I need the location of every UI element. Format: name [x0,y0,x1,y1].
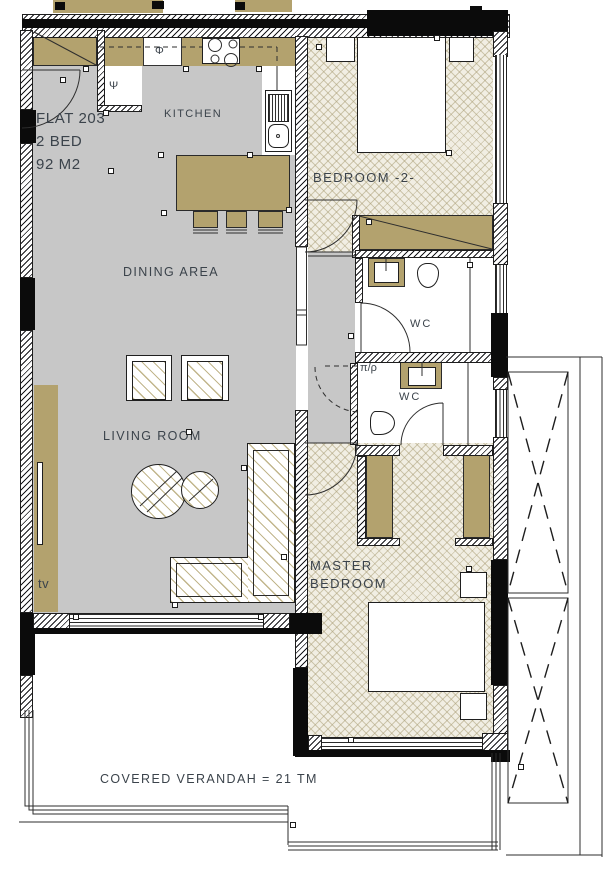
wall-segment [20,110,36,143]
bedroom2-nightstand [449,35,474,62]
master-nightstand [460,693,487,720]
tv-label: tv [38,576,49,591]
louvre-x [508,372,568,803]
room-label-dining: DINING AREA [123,265,219,279]
kitchen-counter-top [97,36,295,66]
node-marker [466,566,472,572]
master-window [322,737,482,750]
wc2-toilet [370,411,395,435]
flat-area: 92 M2 [36,156,81,173]
node-marker [73,614,79,620]
wall-segment [350,363,358,445]
node-marker [108,168,114,174]
bedroom2-wardrobe [358,215,493,250]
wall-segment [357,538,400,546]
wall-segment [355,258,363,303]
node-marker [348,333,354,339]
tv-screen [37,462,43,545]
room-label-kitchen: KITCHEN [164,108,222,120]
node-marker [446,150,452,156]
wall-segment [491,313,508,377]
wall-segment [493,31,508,57]
louvre-panel [508,372,568,593]
oven-symbol: Φ [155,45,165,57]
node-marker [256,66,262,72]
bedroom2-window [495,55,507,203]
node-marker [518,764,524,770]
bar-stool [258,211,283,228]
wc2-window [495,390,507,437]
wall-segment [20,278,35,330]
room-label-bedroom2: BEDROOM -2- [313,170,415,185]
upper-floor-fragment [53,0,163,13]
coffee-table [181,471,219,509]
hallway-floor [308,252,355,443]
louvre-panel [508,598,568,803]
node-marker [366,219,372,225]
opening-jambs [296,247,307,345]
node-marker [60,77,66,83]
node-marker [183,66,189,72]
wc2-basin [408,367,436,386]
bedroom2-bed [357,36,446,153]
wall-segment [33,628,322,634]
wall-segment [491,560,508,685]
bar-stool [226,211,247,228]
node-marker [247,152,253,158]
node-marker [158,152,164,158]
wc1-basin [374,262,399,283]
wall-segment [20,30,33,110]
wall-segment [355,250,508,258]
master-bed [368,602,485,692]
wc1-door [361,303,410,352]
sofa-seat-line [176,563,242,597]
bar-stool [193,211,218,228]
wall-segment [443,445,493,456]
verandah-label: COVERED VERANDAH = 21 TM [100,772,318,786]
wall-segment [357,456,366,546]
stove [202,38,240,64]
wall-segment [22,19,370,28]
wc1-window [495,265,507,313]
room-label-wc1: WC [410,318,432,330]
node-marker [434,35,440,41]
wall-segment [20,675,33,718]
wc1-toilet [417,263,439,288]
kitchen-island [176,155,290,211]
node-marker [281,554,287,560]
sink-drainboard [268,94,289,122]
wall-segment [97,30,105,112]
master-nightstand [460,572,487,598]
node-marker [103,110,109,116]
room-label-master-1: MASTER [310,558,373,573]
wall-segment [20,143,33,278]
wall-segment [295,750,508,757]
node-marker [348,737,354,743]
sofa-seat-line [253,450,289,596]
floor-plan: FLAT 203 2 BED 92 M2 KITCHEN Φ Ψ BEDROOM… [0,0,606,881]
flat-beds: 2 BED [36,133,82,150]
sink-basin [268,124,289,148]
wall-segment [20,330,33,613]
fridge-symbol: Ψ [109,80,120,92]
wall-segment [455,538,493,546]
armchair-seat [187,361,223,400]
bedroom2-nightstand [326,35,355,62]
node-marker [161,210,167,216]
armchair-seat [132,361,166,400]
wall-segment [367,10,508,36]
wall-segment [355,445,400,456]
node-marker [316,44,322,50]
wall-segment [493,203,508,265]
wc2-door [401,403,443,445]
node-marker [467,262,473,268]
wall-segment [295,36,308,247]
node-marker [172,602,178,608]
flat-name: FLAT 203 [36,110,105,127]
coffee-table [131,464,186,519]
node-marker [258,614,264,620]
node-marker [186,429,192,435]
plan-tick [152,1,164,9]
plan-tick [235,2,245,10]
room-label-wc2: WC [399,391,421,403]
laundry-symbol: π/ρ [360,362,377,374]
node-marker [286,207,292,213]
wall-segment [493,437,508,560]
room-label-master-2: BEDROOM [310,576,387,591]
plan-tick [55,2,65,10]
master-wardrobe [463,452,490,538]
node-marker [290,822,296,828]
master-wardrobe [366,452,393,538]
node-marker [83,66,89,72]
side-strip-frame [506,357,602,857]
wall-segment [493,377,508,390]
wall-segment [293,668,308,756]
node-marker [241,465,247,471]
